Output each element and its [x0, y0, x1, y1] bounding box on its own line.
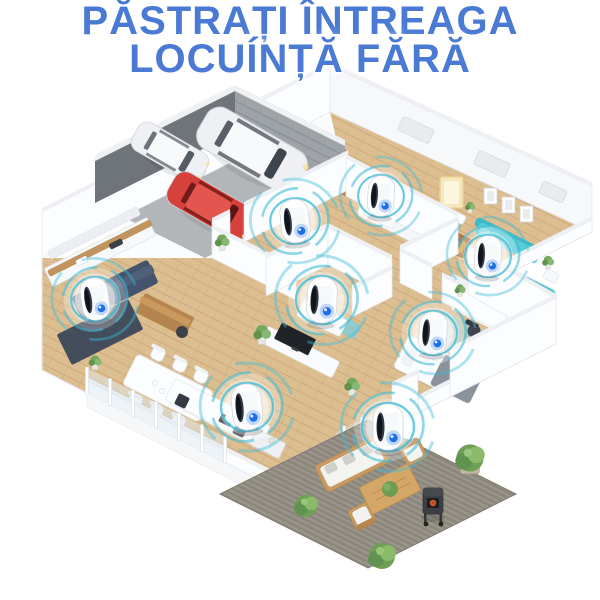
headline-line-2: LOCUÍNȚĂ FĂRĂ [0, 40, 600, 78]
bbq-grill [421, 488, 445, 526]
potted-plant [542, 256, 554, 269]
headline: PĂSTRAȚI ÎNTREAGA LOCUÍNȚĂ FĂRĂ [0, 2, 600, 79]
floorplan-illustration [0, 0, 600, 600]
ad-image: PĂSTRAȚI ÎNTREAGA LOCUÍNȚĂ FĂRĂ [0, 0, 600, 600]
headline-line-1: PĂSTRAȚI ÎNTREAGA [0, 2, 600, 40]
